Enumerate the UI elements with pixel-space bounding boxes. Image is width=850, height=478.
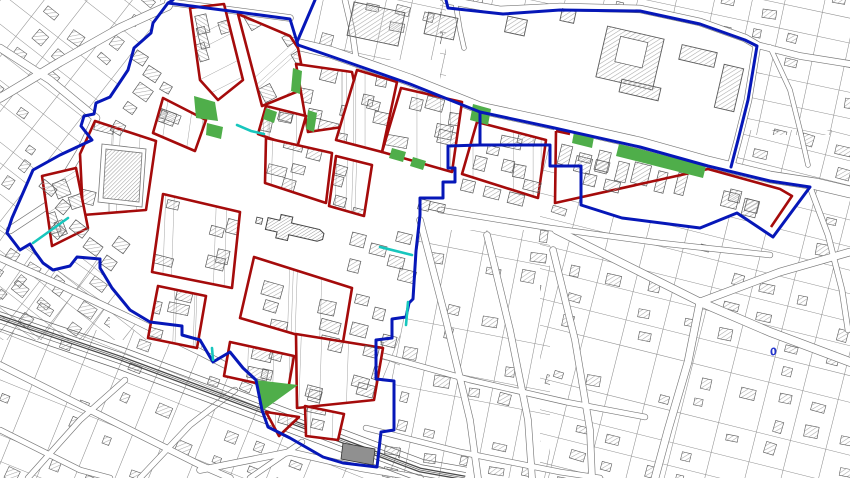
map-viewport[interactable]: 0 bbox=[0, 0, 850, 478]
park-square bbox=[98, 144, 146, 207]
map-canvas: 0 bbox=[0, 0, 850, 478]
